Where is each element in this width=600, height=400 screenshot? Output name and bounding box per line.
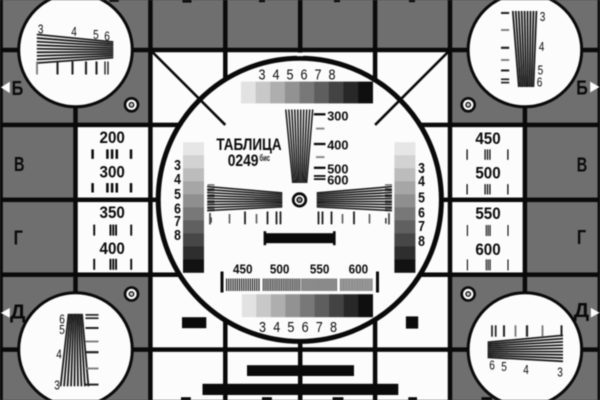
svg-text:В: В xyxy=(14,154,25,176)
svg-text:450: 450 xyxy=(233,262,253,277)
svg-text:7: 7 xyxy=(316,319,323,336)
svg-text:400: 400 xyxy=(327,138,348,153)
svg-text:7: 7 xyxy=(315,67,322,84)
svg-text:350: 350 xyxy=(100,203,125,222)
svg-text:5: 5 xyxy=(287,319,294,336)
svg-text:4: 4 xyxy=(273,319,280,336)
svg-text:6: 6 xyxy=(301,67,308,84)
svg-text:Б: Б xyxy=(12,78,24,100)
svg-text:7: 7 xyxy=(418,219,425,235)
svg-text:4: 4 xyxy=(539,39,545,54)
svg-text:6: 6 xyxy=(489,358,495,373)
svg-text:6: 6 xyxy=(104,29,110,44)
svg-text:4: 4 xyxy=(174,172,181,188)
svg-text:4: 4 xyxy=(273,67,280,84)
svg-text:600: 600 xyxy=(349,262,369,277)
svg-text:300: 300 xyxy=(327,108,348,123)
svg-text:Г: Г xyxy=(14,227,23,249)
svg-text:3: 3 xyxy=(259,67,266,84)
svg-text:5: 5 xyxy=(174,187,181,203)
svg-text:Д: Д xyxy=(574,300,589,322)
svg-text:3: 3 xyxy=(557,365,563,380)
svg-text:3: 3 xyxy=(38,22,44,37)
svg-text:550: 550 xyxy=(310,262,330,277)
svg-text:5: 5 xyxy=(418,191,425,207)
svg-text:450: 450 xyxy=(475,129,500,148)
svg-text:Г: Г xyxy=(577,227,586,249)
svg-text:3: 3 xyxy=(259,319,266,336)
svg-text:0249: 0249 xyxy=(228,151,259,170)
svg-text:3: 3 xyxy=(54,378,60,393)
svg-text:500: 500 xyxy=(475,164,500,183)
svg-text:Б: Б xyxy=(576,78,588,100)
svg-text:4: 4 xyxy=(523,362,529,377)
svg-text:4: 4 xyxy=(71,24,77,39)
svg-text:3: 3 xyxy=(540,9,546,24)
svg-text:4: 4 xyxy=(56,347,62,362)
svg-text:5: 5 xyxy=(287,67,294,84)
svg-text:550: 550 xyxy=(475,204,500,223)
svg-text:бис: бис xyxy=(260,153,271,163)
svg-text:5: 5 xyxy=(59,322,65,337)
svg-text:600: 600 xyxy=(475,240,500,259)
svg-text:8: 8 xyxy=(174,228,181,244)
svg-text:6: 6 xyxy=(537,74,543,89)
svg-text:6: 6 xyxy=(302,319,309,336)
svg-text:8: 8 xyxy=(329,67,336,84)
svg-text:400: 400 xyxy=(100,239,125,258)
svg-text:600: 600 xyxy=(327,173,348,188)
svg-text:300: 300 xyxy=(100,163,125,182)
svg-text:4: 4 xyxy=(418,174,425,190)
svg-text:8: 8 xyxy=(418,234,425,250)
svg-text:В: В xyxy=(577,154,588,176)
svg-text:8: 8 xyxy=(330,319,337,336)
svg-text:500: 500 xyxy=(270,262,290,277)
svg-text:200: 200 xyxy=(100,128,125,147)
svg-text:Д: Д xyxy=(10,301,25,323)
svg-text:5: 5 xyxy=(501,359,507,374)
svg-text:5: 5 xyxy=(93,27,99,42)
